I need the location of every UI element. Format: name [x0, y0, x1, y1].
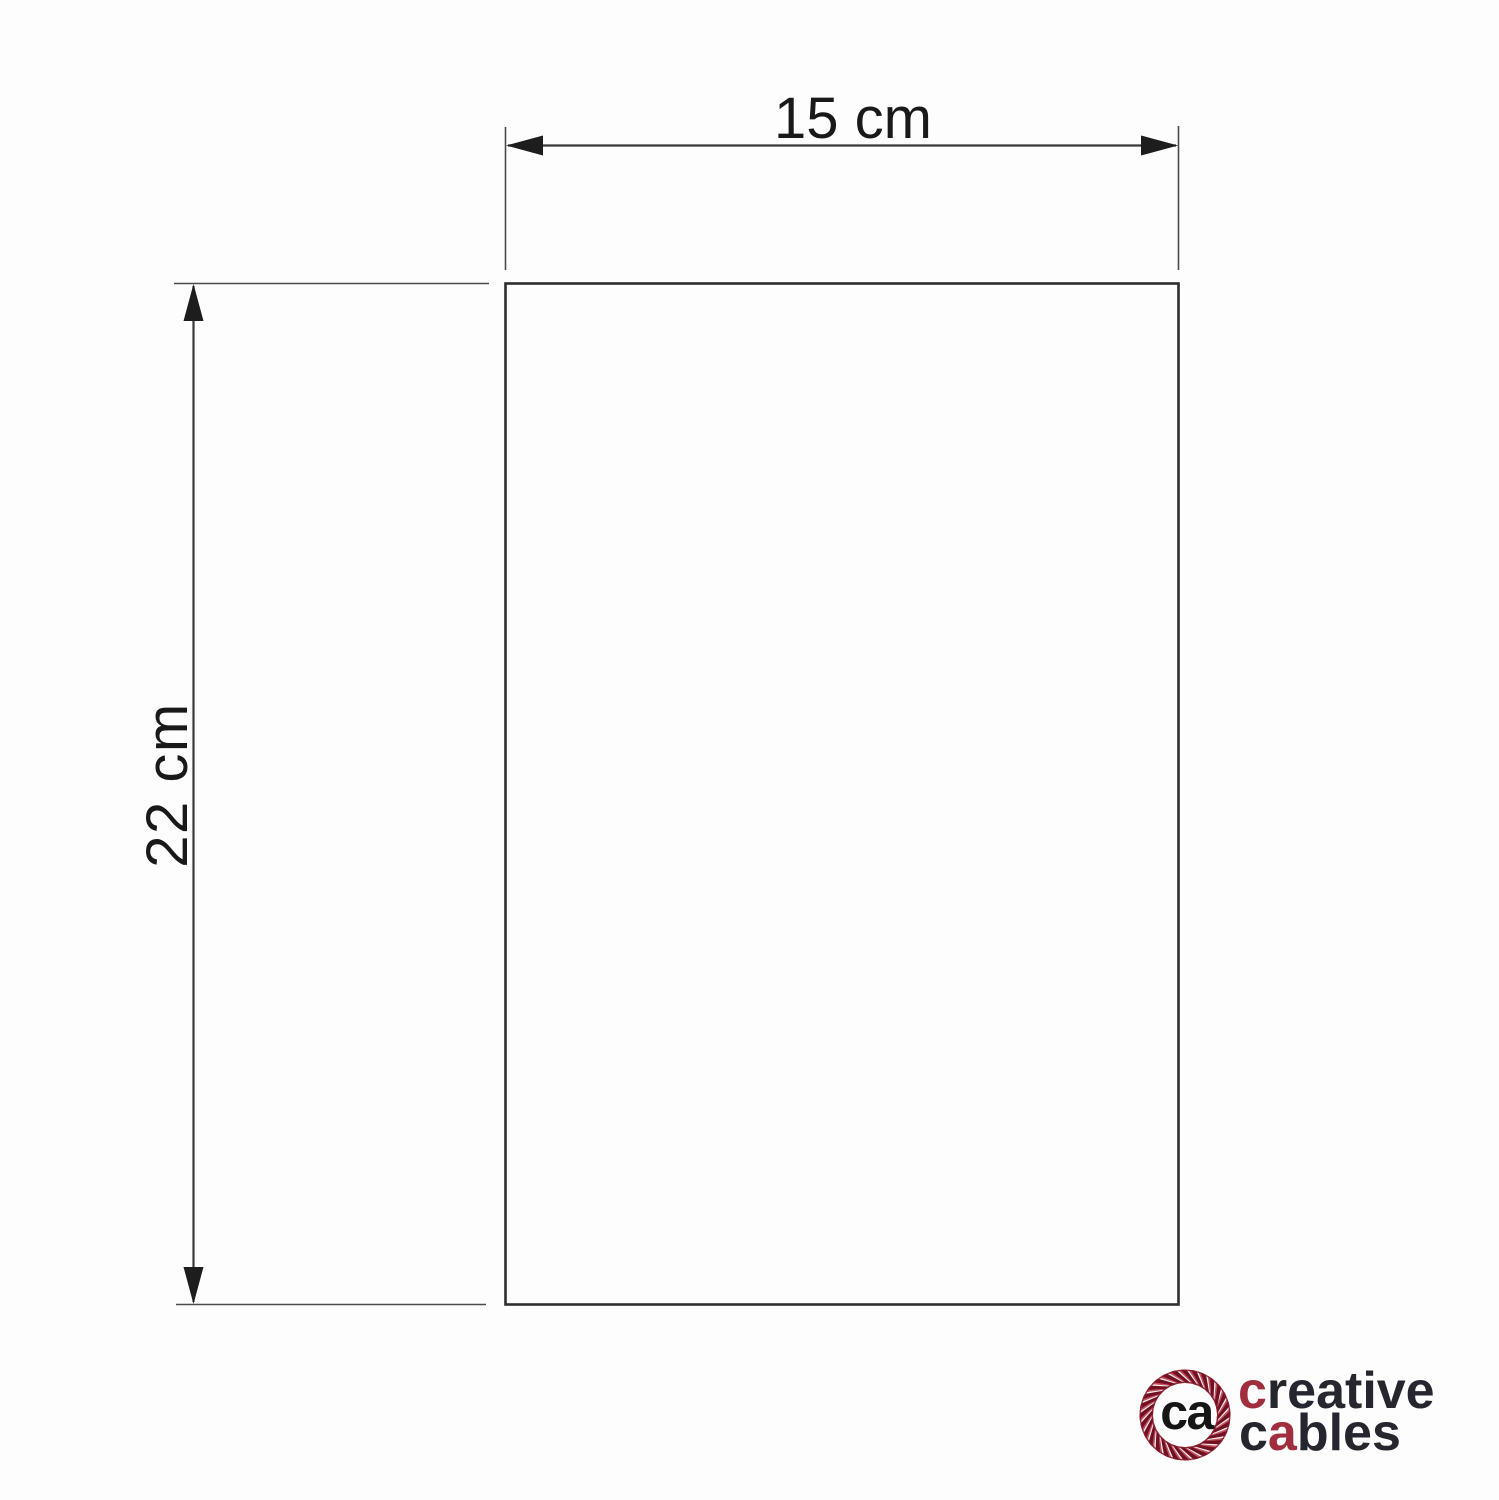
svg-text:15 cm: 15 cm	[774, 86, 932, 151]
svg-text:22 cm: 22 cm	[135, 702, 200, 867]
svg-text:ca: ca	[1160, 1384, 1215, 1440]
svg-text:cables: cables	[1239, 1404, 1401, 1462]
